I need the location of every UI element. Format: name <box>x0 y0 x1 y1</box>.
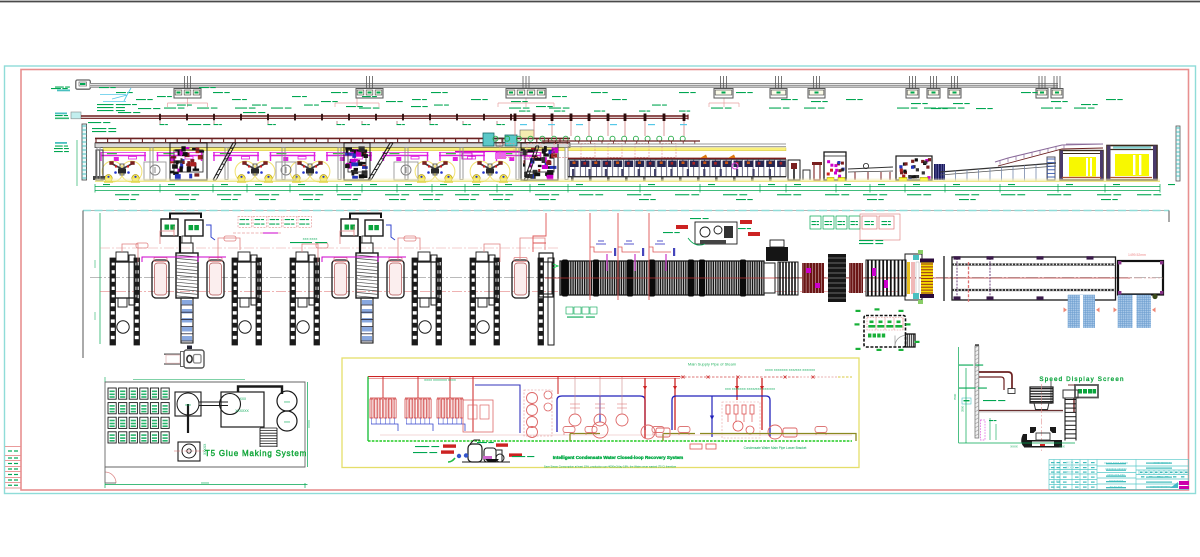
svg-text:XXX: XXX <box>1059 445 1065 449</box>
svg-text:XXXX: XXXX <box>307 420 311 428</box>
svg-text:XXXX: XXXX <box>93 312 97 320</box>
svg-text:3500: 3500 <box>961 405 965 412</box>
svg-text:XXXX-XXX-XXX: XXXX-XXX-XXX <box>1107 474 1125 477</box>
svg-text:XXX: XXX <box>185 403 191 407</box>
svg-text:XXX: XXX <box>240 397 247 401</box>
svg-text:XXXXXXXXXXXX: XXXXXXXXXXXX <box>1150 486 1170 489</box>
svg-text:7000: 7000 <box>953 393 957 400</box>
svg-text:Intelligent Condensate Water C: Intelligent Condensate Water Closed-loop… <box>553 455 684 460</box>
svg-text:1499.52mm: 1499.52mm <box>1128 253 1146 257</box>
svg-text:XXXXX XXXX XXXXX: XXXXX XXXX XXXXX <box>1104 462 1128 465</box>
svg-text:X X X: X X X <box>1157 476 1164 479</box>
svg-text:X X: X X <box>1056 480 1060 483</box>
svg-text:Condensate Water Main Pipe Low: Condensate Water Main Pipe Lower Bracket <box>744 446 807 450</box>
svg-text:Speed Display Screen: Speed Display Screen <box>1039 376 1124 383</box>
svg-text:XXXX XXXXXXX XXXX: XXXX XXXXXXX XXXX <box>424 378 456 382</box>
svg-text:XX-XX-XXX: XX-XX-XXX <box>1110 486 1123 489</box>
svg-text:T5 Glue Making System: T5 Glue Making System <box>205 449 307 458</box>
svg-text:XXX XXXX: XXX XXXX <box>303 237 318 241</box>
svg-text:XX XX: XX XX <box>1066 462 1073 465</box>
svg-text:XXXX-XXX-X-X: XXXX-XXX-X-X <box>1154 462 1171 465</box>
svg-text:XXXX: XXXX <box>93 260 97 268</box>
svg-text:XXXXXXX XXXXXX: XXXXXXX XXXXXX <box>1105 468 1127 471</box>
svg-text:Save Steam Consumption at leas: Save Steam Consumption at least 15%, pro… <box>544 465 677 469</box>
svg-text:XXX XXXXXXX XXXX/XXX XXX/XXX: XXX XXXXXXX XXXX/XXX XXX/XXX <box>725 387 775 391</box>
svg-text:XXX: XXX <box>284 420 290 424</box>
svg-text:XX XX: XX XX <box>1066 471 1073 474</box>
svg-text:XXXX XXXXXXX XXX/XXX XXX/XXX: XXXX XXXXXXX XXX/XXX XXX/XXX <box>765 368 815 372</box>
svg-text:XXXX: XXXX <box>201 481 209 485</box>
svg-text:XX XXX: XX XXX <box>1066 467 1075 470</box>
svg-text:Main Supply Pipe of Steam: Main Supply Pipe of Steam <box>688 362 737 367</box>
svg-text:XXXXXX: XXXXXX <box>235 409 249 413</box>
svg-text:XXXXXXXXX: XXXXXXXXX <box>1109 480 1124 483</box>
svg-text:XXXX: XXXX <box>1010 445 1018 449</box>
svg-text:XXX: XXX <box>284 400 290 404</box>
